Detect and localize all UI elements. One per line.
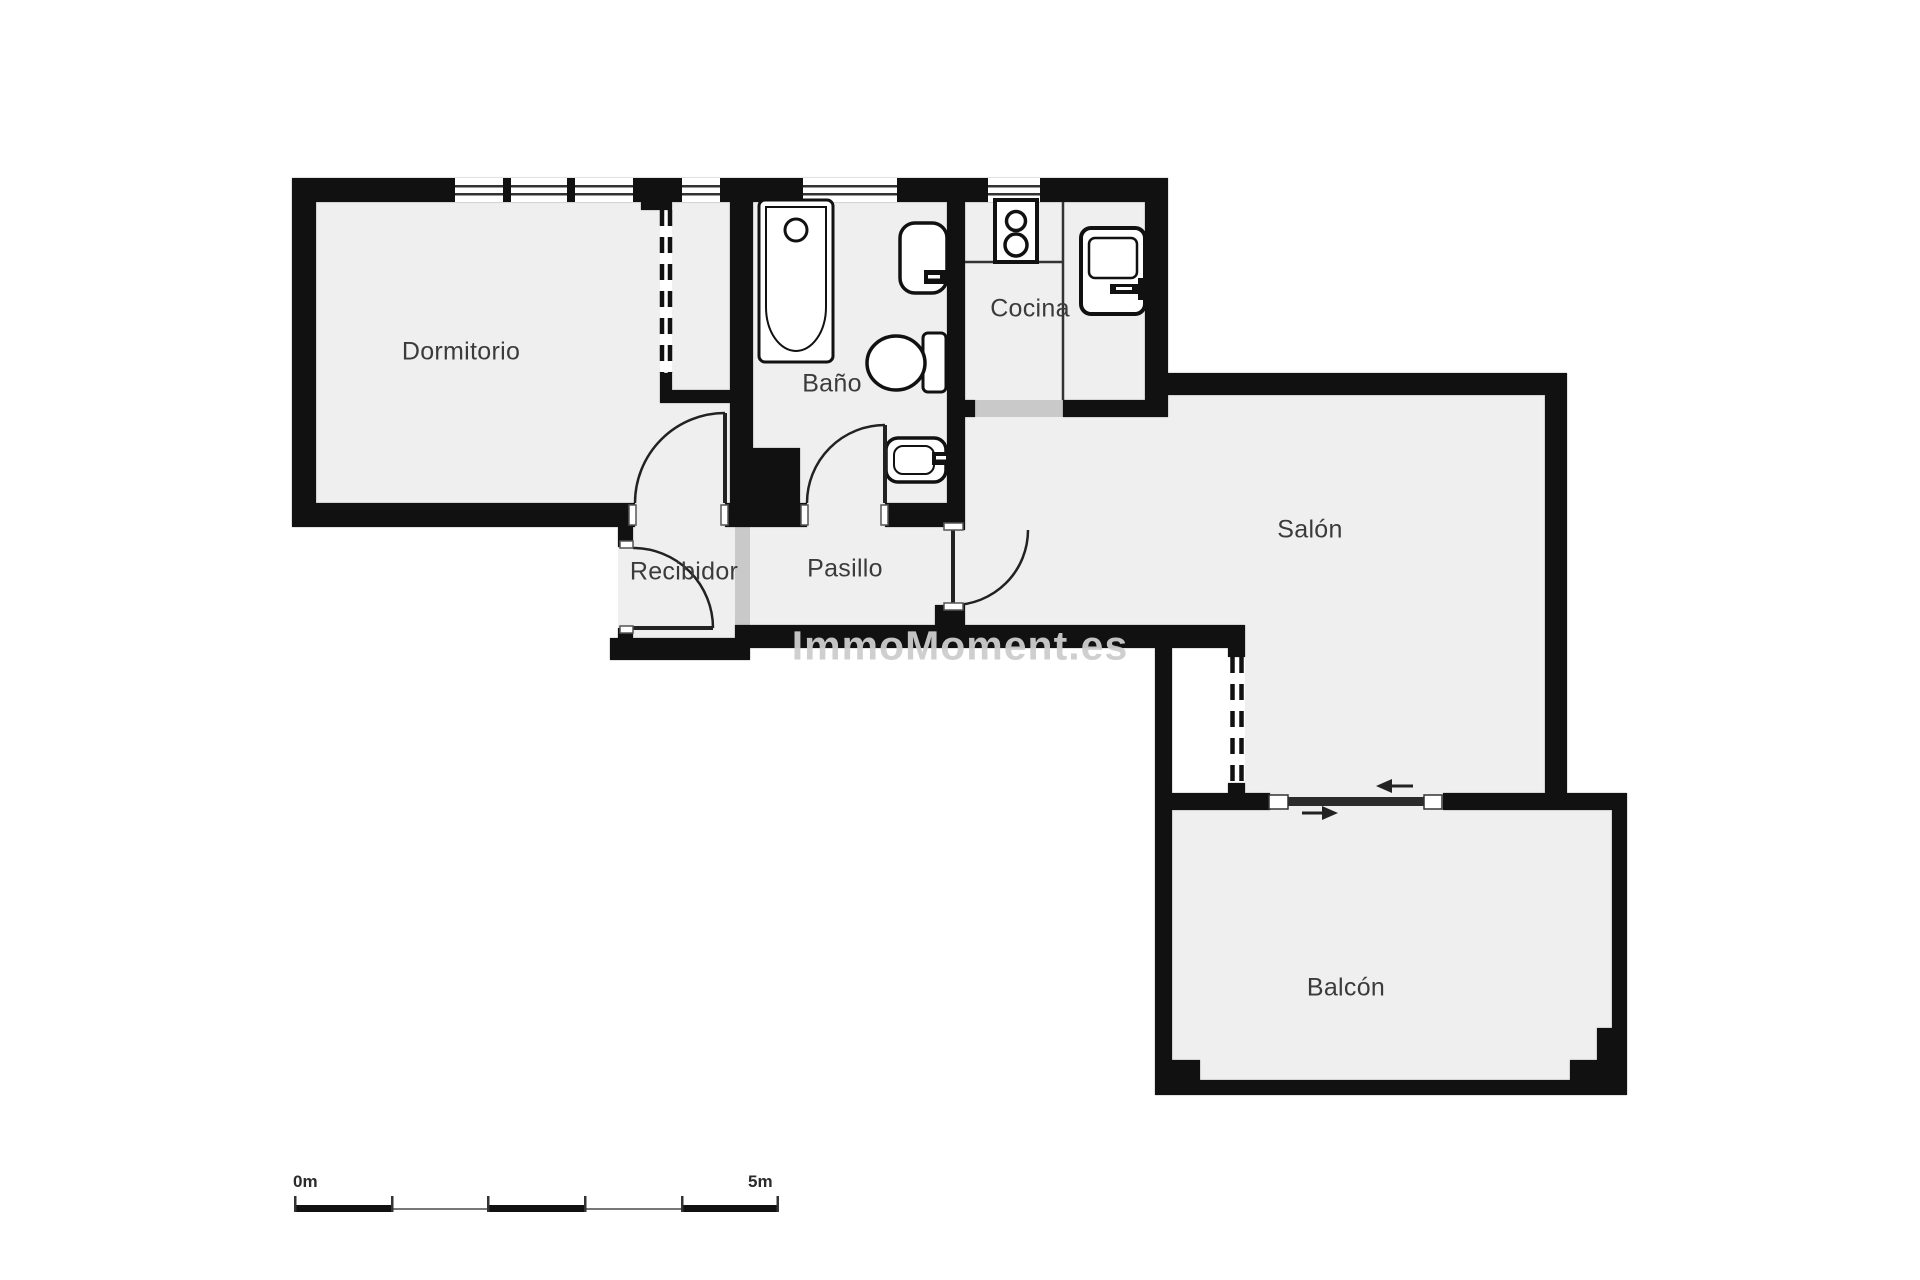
threshold-cocina-opening xyxy=(975,400,1063,417)
scale-bar xyxy=(294,1196,779,1212)
room-label-salon: Salón xyxy=(1277,516,1342,545)
room-label-recibidor: Recibidor xyxy=(630,558,738,587)
scale-start-label: 0m xyxy=(293,1172,318,1192)
toilet-icon xyxy=(867,333,946,392)
window-icon xyxy=(795,178,905,202)
watermark: ImmoMoment.es xyxy=(792,623,1129,670)
bathtub-drain-icon xyxy=(785,219,807,241)
floor-balcon xyxy=(1172,810,1612,1080)
floor-salon-west-lobe xyxy=(965,417,1168,625)
stove-icon xyxy=(995,200,1037,262)
kitchen-sink-icon xyxy=(1081,228,1145,314)
vanity-sink-icon xyxy=(886,438,952,482)
floor-salon-main xyxy=(1168,395,1545,648)
floor-plan-page: Dormitorio Baño Cocina Salón Recibidor P… xyxy=(0,0,1920,1280)
room-label-pasillo: Pasillo xyxy=(807,555,883,584)
floor-dormitorio-doorway xyxy=(635,503,725,527)
balcony-step-right-a xyxy=(1597,1028,1612,1080)
floor-closet-nook xyxy=(672,202,730,390)
window-icon xyxy=(674,178,728,202)
room-label-cocina: Cocina xyxy=(990,295,1070,324)
wall-sink-icon xyxy=(900,223,947,293)
room-label-bano: Baño xyxy=(802,370,862,399)
room-label-balcon: Balcón xyxy=(1307,974,1385,1003)
scale-end-label: 5m xyxy=(748,1172,773,1192)
room-label-dormitorio: Dormitorio xyxy=(402,338,520,367)
window-icon xyxy=(447,178,641,202)
bathtub-icon xyxy=(759,200,833,362)
balcony-step-left xyxy=(1172,1060,1200,1080)
balcony-step-right-b xyxy=(1570,1060,1597,1080)
floor-bano-doorway xyxy=(807,503,885,527)
floor-salon-south xyxy=(1245,648,1545,793)
